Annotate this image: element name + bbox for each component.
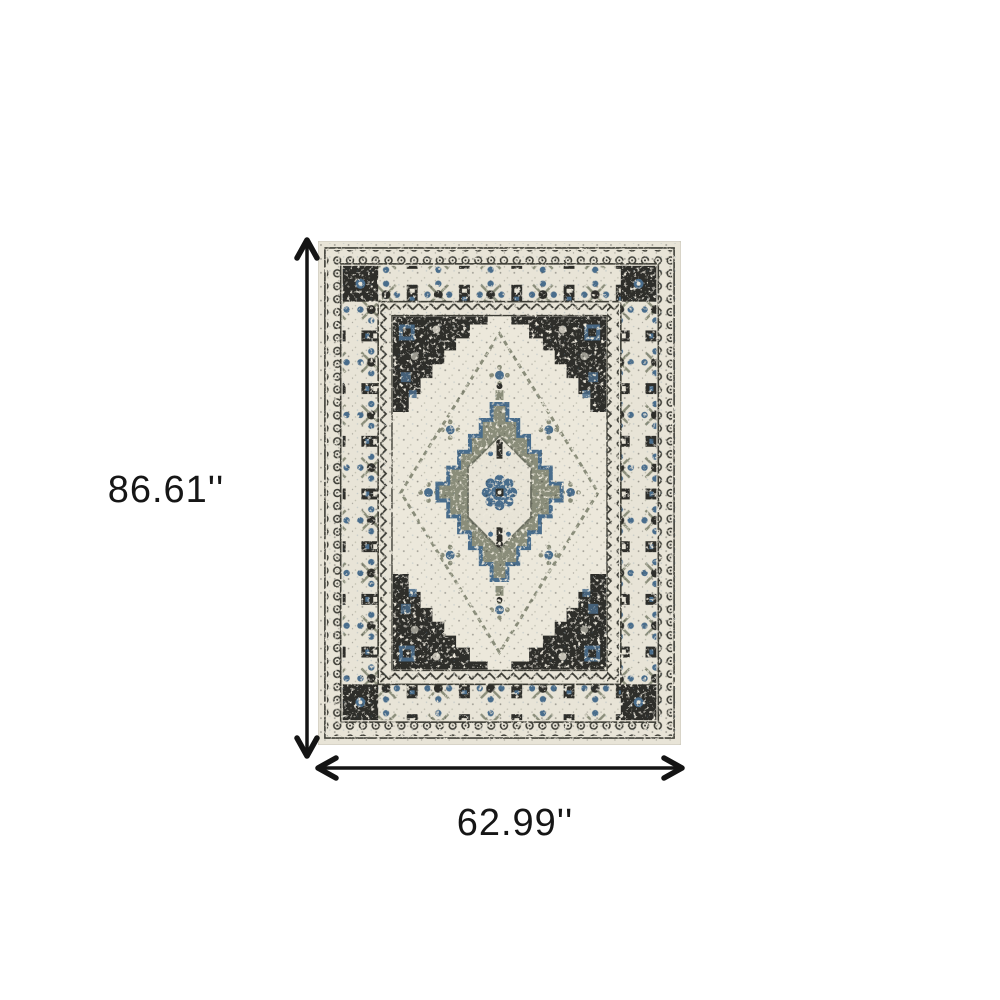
width-dimension-label: 62.99'' <box>425 797 605 849</box>
height-dimension-label: 86.61'' <box>76 464 256 516</box>
width-dimension-arrow <box>314 753 686 783</box>
height-dimension-arrow <box>292 236 322 760</box>
rug-grain-texture <box>320 243 679 743</box>
rug-image <box>318 241 681 745</box>
product-dimension-diagram: 86.61'' 62.99'' <box>0 0 1000 1000</box>
